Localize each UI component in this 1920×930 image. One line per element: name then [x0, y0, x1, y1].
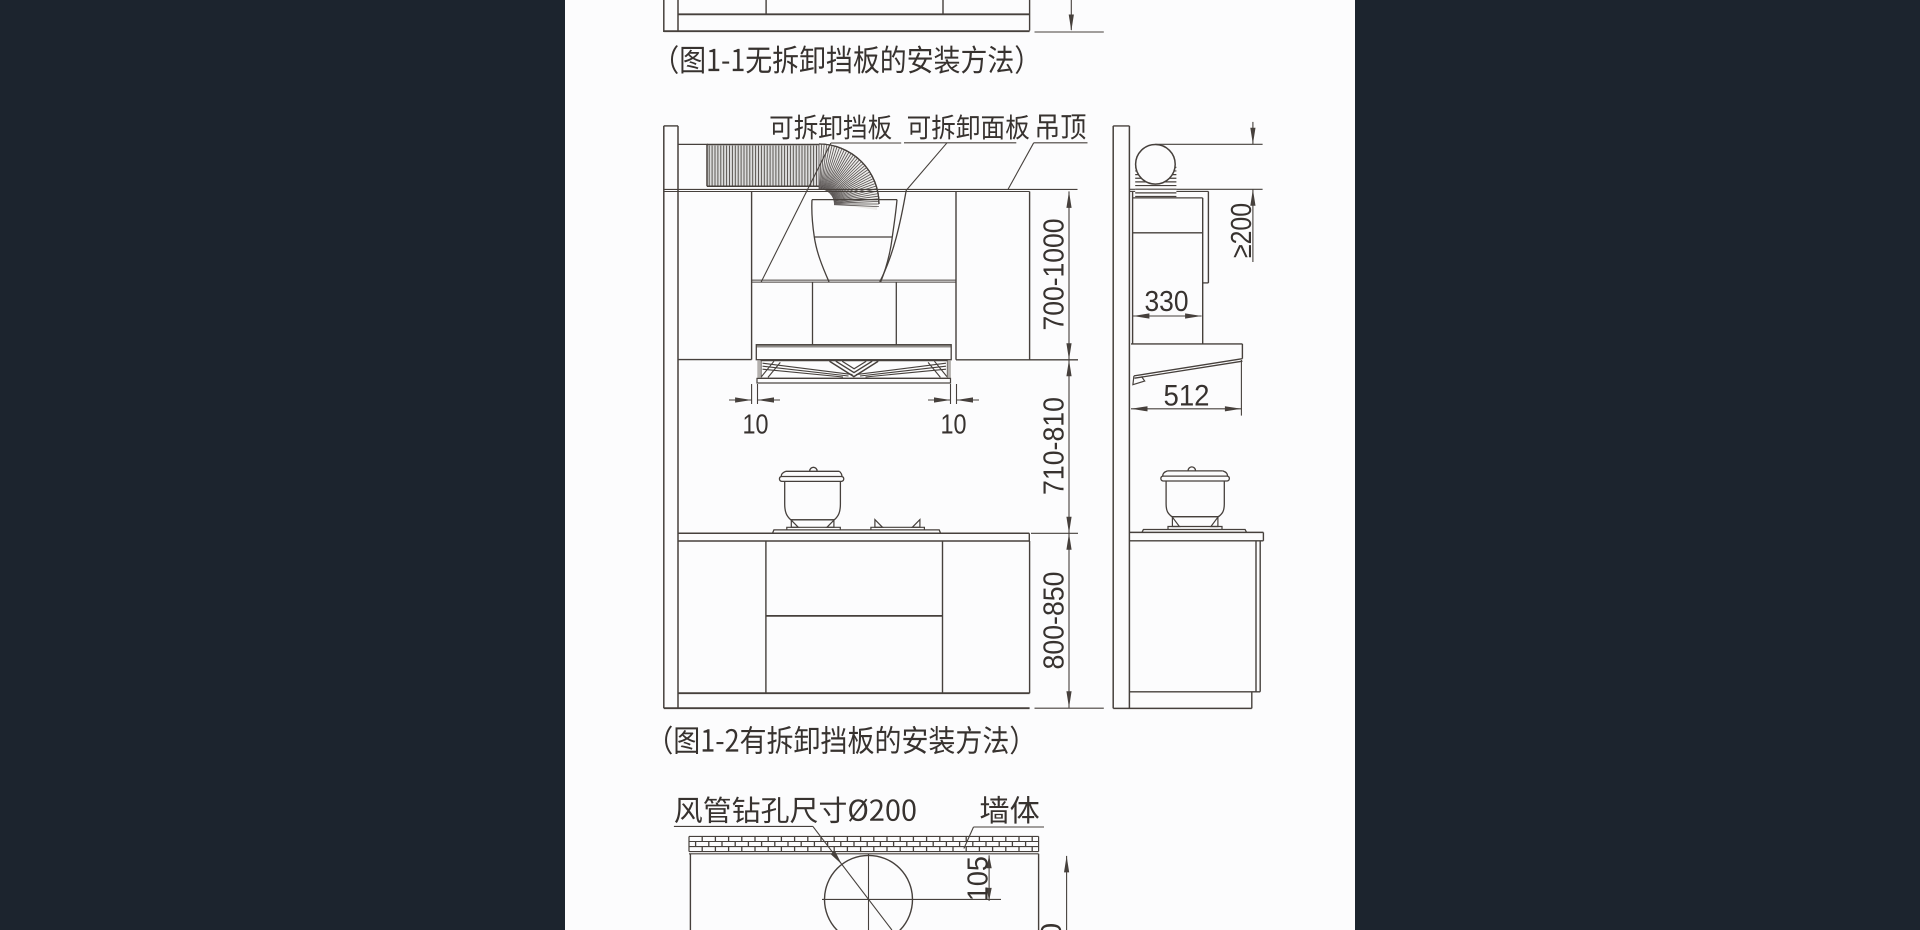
svg-text:710-810: 710-810: [1039, 397, 1071, 495]
svg-text:512: 512: [1164, 380, 1210, 413]
svg-text:700-1000: 700-1000: [1039, 219, 1071, 331]
svg-text:290: 290: [1036, 923, 1068, 930]
svg-text:800-850: 800-850: [1039, 572, 1071, 670]
svg-text:≥200: ≥200: [1226, 203, 1258, 258]
svg-text:105: 105: [963, 856, 995, 901]
svg-text:330: 330: [1145, 286, 1189, 318]
svg-text:10: 10: [743, 409, 769, 440]
svg-text:10: 10: [941, 409, 967, 440]
